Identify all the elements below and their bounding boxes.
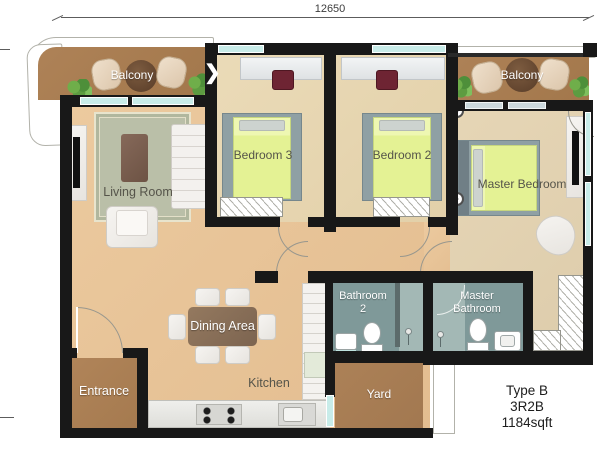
bathroom2-shower-floor xyxy=(399,283,423,351)
dining-chair xyxy=(195,288,220,306)
bathroom2-label-line1: Bathroom xyxy=(339,290,387,302)
wall-bottom xyxy=(60,428,433,438)
bedroom2-pillow xyxy=(379,120,425,131)
dining-chair xyxy=(225,346,250,364)
sink-basin-icon xyxy=(500,335,515,347)
unit-info: Type B 3R2B 1184sqft xyxy=(465,383,589,431)
yard-outer-ledge xyxy=(433,358,455,434)
dining-chair xyxy=(225,288,250,306)
wall-entrance-stub-left xyxy=(60,348,77,358)
plant-icon xyxy=(569,76,589,98)
dining-chair xyxy=(168,314,186,340)
bathroom2-label: Bathroom 2 xyxy=(331,290,395,316)
wall-yard-left xyxy=(325,363,335,397)
coffee-table xyxy=(121,134,148,182)
bedroom3-label: Bedroom 3 xyxy=(222,148,304,162)
stove-icon xyxy=(196,404,242,425)
wall-entrance-kitchen xyxy=(137,348,148,438)
yard-window xyxy=(326,395,334,427)
bathroom2-sink xyxy=(335,333,357,350)
bedroom2-desk-chair xyxy=(376,70,398,90)
sink-basin-icon xyxy=(283,407,303,422)
living-room-label: Living Room xyxy=(93,185,183,199)
unit-layout: 3R2B xyxy=(510,399,544,414)
bedroom2-label: Bedroom 2 xyxy=(361,148,443,162)
fridge-icon xyxy=(304,352,326,378)
wall-bedroom3-bedroom2 xyxy=(324,43,336,232)
floor-plan: 12650 xyxy=(0,0,600,450)
side-tick-top xyxy=(0,49,10,50)
bathroom2-label-line2: 2 xyxy=(360,303,366,315)
dimension-line xyxy=(61,17,589,18)
balcony-door-chevron-icon: ❯ xyxy=(204,60,222,86)
wall-left-exterior xyxy=(60,95,72,438)
wall-bedroom2-master xyxy=(446,43,458,235)
wall-bedroom2-hall xyxy=(336,217,400,227)
unit-type: Type B xyxy=(506,383,548,398)
shower-stem xyxy=(408,335,409,345)
wall-corner-topright xyxy=(583,43,597,57)
wall-hall-bathrooms xyxy=(308,271,533,283)
dimension-label: 12650 xyxy=(295,3,365,15)
wall-hall-bathroom-stub xyxy=(255,271,278,283)
master-balcony-door xyxy=(508,102,546,109)
toilet-icon xyxy=(469,318,487,342)
wall-bedroom3-hall xyxy=(205,217,280,227)
wall-bathroom2-yard xyxy=(325,351,433,363)
wall-bedroom3-hall xyxy=(308,217,336,227)
wall-bedroom2-hall xyxy=(428,217,458,227)
balcony-right-label: Balcony xyxy=(482,68,562,82)
master-bathroom-label: Master Bathroom xyxy=(430,290,524,316)
yard-label: Yard xyxy=(335,387,423,401)
unit-area: 1184sqft xyxy=(502,415,553,430)
dining-chair xyxy=(258,314,276,340)
dining-area-label: Dining Area xyxy=(188,319,257,333)
master-bedroom-label: Master Bedroom xyxy=(452,177,592,191)
bedroom3-window xyxy=(218,45,264,53)
entrance-door-leaf xyxy=(76,307,78,353)
shower-head-icon xyxy=(437,331,444,338)
shower-head-icon xyxy=(405,328,412,335)
master-bathroom-label-line2: Bathroom xyxy=(453,303,501,315)
dimension-tick-right xyxy=(583,15,594,21)
bedroom3-desk-chair xyxy=(272,70,294,90)
master-wardrobe-horizontal xyxy=(533,330,561,351)
wall-bottom-right xyxy=(423,351,593,365)
kitchen-label: Kitchen xyxy=(235,376,303,390)
master-window xyxy=(585,112,591,176)
master-window xyxy=(585,182,591,246)
armchair-cushion xyxy=(116,210,148,236)
toilet-icon xyxy=(363,322,381,344)
tv-living-icon xyxy=(73,137,80,188)
dining-chair xyxy=(195,346,220,364)
balcony-left-label: Balcony xyxy=(92,68,172,82)
dimension-tick-left xyxy=(52,15,63,21)
bedroom2-window xyxy=(372,45,446,53)
master-bathroom-label-line1: Master xyxy=(460,290,494,302)
living-balcony-window xyxy=(132,97,194,105)
wall-masterbath-right xyxy=(523,283,533,353)
toilet-tank xyxy=(467,342,489,351)
entrance-label: Entrance xyxy=(72,384,136,398)
bedroom2-wardrobe xyxy=(373,197,430,217)
side-tick-bottom xyxy=(0,417,14,418)
master-wardrobe-vertical xyxy=(558,275,584,351)
living-balcony-window xyxy=(80,97,128,105)
bathroom2-partition xyxy=(395,283,400,347)
bedroom3-pillow xyxy=(239,120,285,131)
balcony-right-edge xyxy=(448,53,593,57)
bedroom3-wardrobe xyxy=(220,197,283,217)
master-balcony-door xyxy=(465,102,503,109)
